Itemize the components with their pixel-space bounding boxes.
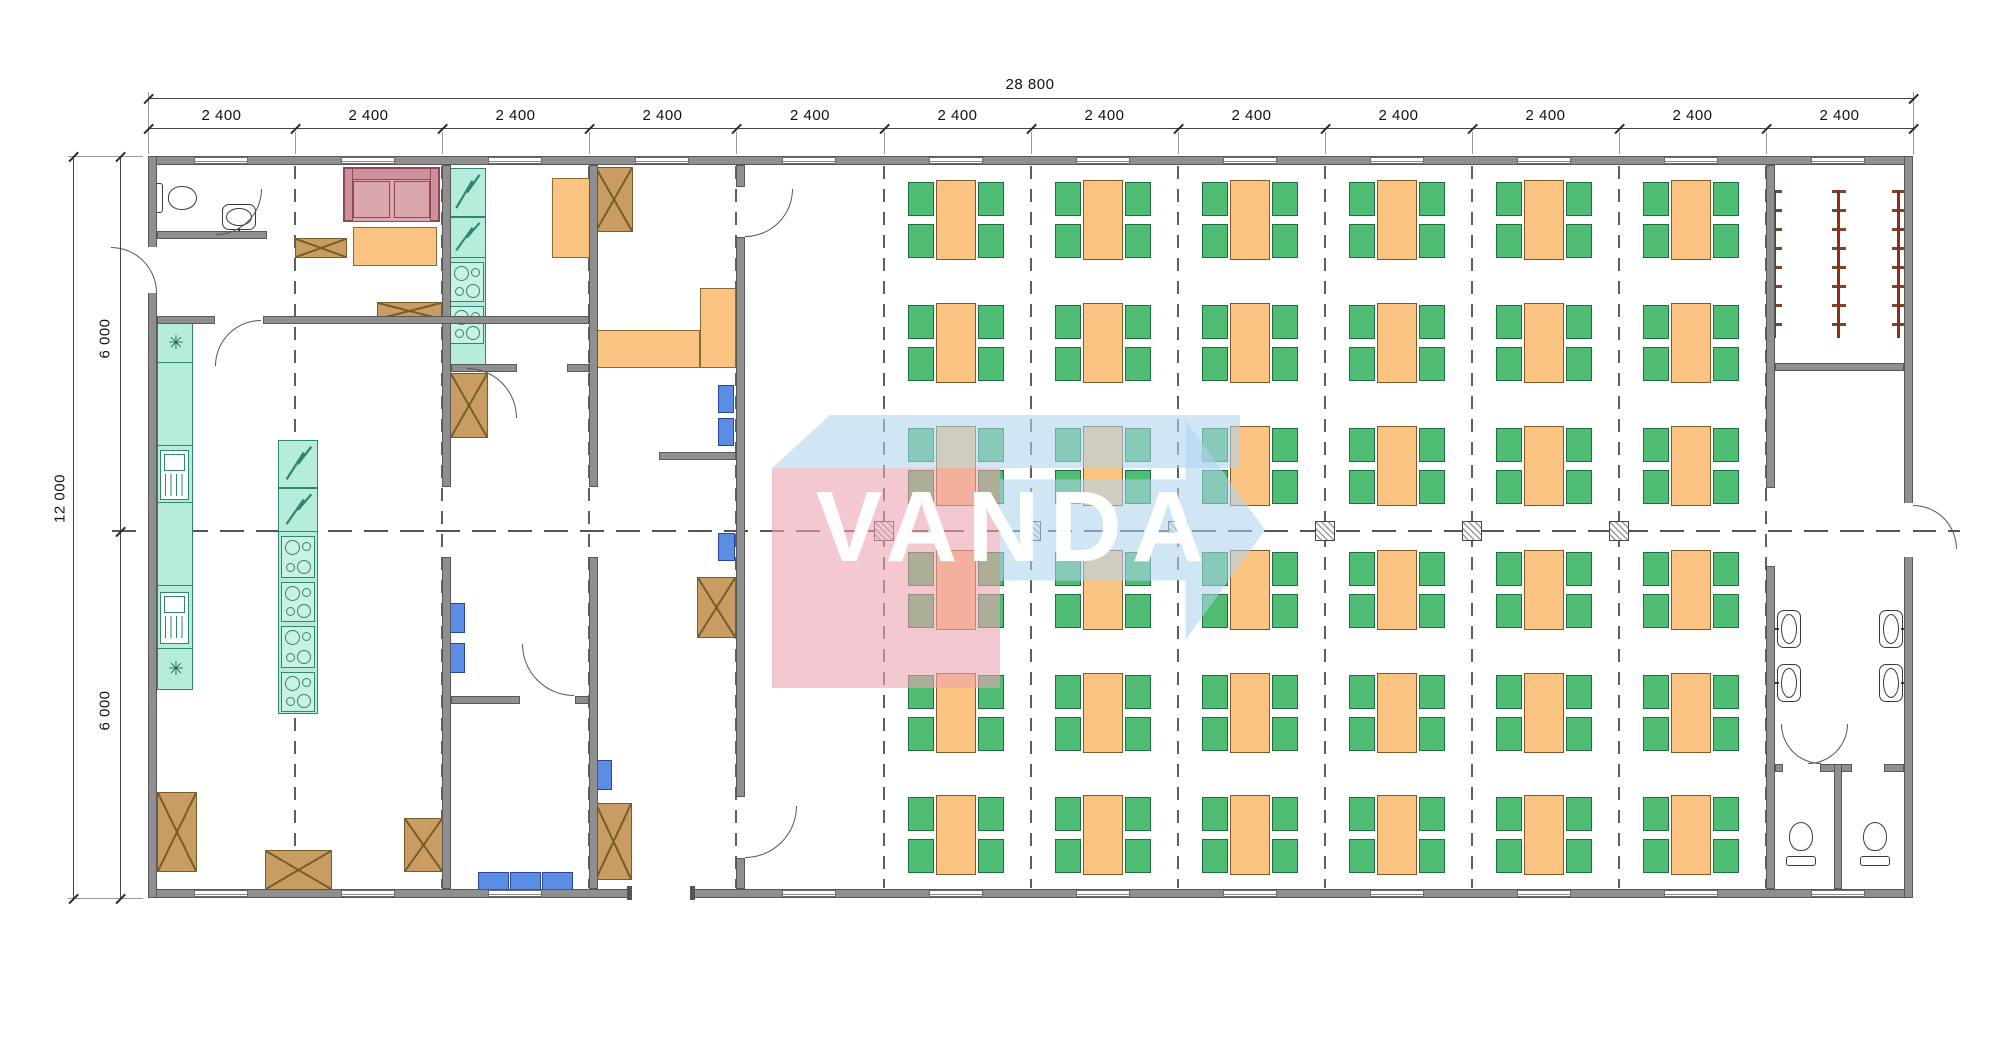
dimension-label: 2 400 — [1212, 107, 1292, 125]
chair — [1055, 182, 1081, 216]
window-icon — [1076, 157, 1130, 164]
chair — [1202, 717, 1228, 751]
wall — [442, 165, 451, 487]
chair — [1055, 675, 1081, 709]
chair — [1125, 594, 1151, 628]
chair — [1713, 347, 1739, 381]
chair — [1643, 839, 1669, 873]
floor-plan-canvas: VANDA 28 800 12 000 6 000 6 000 ✳✳2 4002… — [0, 0, 2000, 1041]
counter-divider — [157, 585, 193, 586]
chair — [1643, 594, 1669, 628]
wall — [1775, 363, 1904, 371]
dimension-label: 2 400 — [1506, 107, 1586, 125]
door-swing-icon — [216, 189, 262, 235]
chair — [1643, 347, 1669, 381]
chair — [908, 224, 934, 258]
seat — [510, 872, 541, 890]
chair — [908, 182, 934, 216]
chair — [1055, 305, 1081, 339]
stove-icon — [281, 536, 315, 578]
seat — [718, 533, 735, 561]
dimension-line — [120, 156, 121, 898]
wall — [157, 316, 215, 324]
watermark-logo-text: VANDA — [770, 462, 1260, 592]
window-icon — [1076, 890, 1130, 897]
extension-line — [589, 132, 590, 154]
chair — [1202, 305, 1228, 339]
chair — [1713, 224, 1739, 258]
chair — [1349, 839, 1375, 873]
seat — [718, 385, 734, 413]
dining-table — [1524, 795, 1564, 875]
dining-table — [1524, 426, 1564, 506]
chair — [1496, 224, 1522, 258]
chair — [1643, 305, 1669, 339]
burner-icon: ✳ — [168, 334, 184, 353]
chair — [908, 717, 934, 751]
counter-table — [353, 227, 437, 266]
door-swing-icon — [745, 189, 793, 237]
washbasin-icon — [1777, 664, 1801, 702]
chair — [1419, 552, 1445, 586]
counter-table — [700, 288, 736, 368]
chair — [1496, 594, 1522, 628]
chair — [1419, 182, 1445, 216]
chair — [978, 182, 1004, 216]
storage-cabinet — [404, 818, 443, 872]
chair — [1349, 717, 1375, 751]
chair — [1272, 552, 1298, 586]
extension-line — [1619, 132, 1620, 154]
column-marker — [1315, 521, 1335, 541]
dining-table — [1671, 426, 1711, 506]
dining-table — [1083, 180, 1123, 260]
burner-icon: ✳ — [168, 660, 184, 679]
toilet-icon — [153, 183, 197, 213]
chair — [1125, 839, 1151, 873]
seat — [718, 418, 734, 446]
chair — [1419, 797, 1445, 831]
toilet-icon — [1860, 822, 1890, 866]
chair — [1202, 347, 1228, 381]
dimension-label: 2 400 — [1800, 107, 1880, 125]
chair — [1349, 224, 1375, 258]
window-icon — [1664, 890, 1718, 897]
dining-table — [1083, 673, 1123, 753]
window-icon — [1370, 157, 1424, 164]
window-icon — [635, 157, 689, 164]
dimension-overall-width: 28 800 — [950, 76, 1110, 93]
extension-line — [442, 132, 443, 154]
counter-table — [552, 178, 590, 258]
window-icon — [1223, 157, 1277, 164]
dimension-height-lower: 6 000 — [97, 668, 114, 754]
extension-line — [68, 156, 143, 157]
chair — [1272, 675, 1298, 709]
window-icon — [1517, 890, 1571, 897]
dimension-label: 2 400 — [1653, 107, 1733, 125]
wall — [442, 557, 451, 889]
chair — [1496, 182, 1522, 216]
chair — [1125, 717, 1151, 751]
wall — [157, 231, 267, 239]
sink-icon — [160, 592, 189, 644]
toilet-icon — [1786, 822, 1816, 866]
chair — [1419, 305, 1445, 339]
chair — [1419, 675, 1445, 709]
stove-icon — [450, 306, 484, 344]
chair — [1349, 305, 1375, 339]
wall — [736, 858, 745, 889]
refrigerator-icon — [278, 488, 318, 532]
chair — [1349, 470, 1375, 504]
chair — [1055, 797, 1081, 831]
counter-table — [592, 330, 700, 368]
chair — [1566, 305, 1592, 339]
dining-table — [1377, 180, 1417, 260]
wall — [1766, 566, 1775, 889]
dining-table — [1377, 426, 1417, 506]
wall — [1775, 764, 1783, 772]
washbasin-icon — [1777, 610, 1801, 648]
wall — [589, 165, 598, 487]
chair — [1419, 470, 1445, 504]
chair — [1713, 470, 1739, 504]
extension-line — [1031, 132, 1032, 154]
dimension-label: 2 400 — [329, 107, 409, 125]
chair — [1566, 470, 1592, 504]
chair — [978, 839, 1004, 873]
column-marker — [1609, 521, 1629, 541]
storage-cabinet — [697, 577, 736, 638]
chair — [1272, 347, 1298, 381]
dining-table — [1524, 303, 1564, 383]
chair — [1349, 594, 1375, 628]
chair — [1566, 675, 1592, 709]
door-swing-icon — [1808, 724, 1848, 764]
chair — [978, 224, 1004, 258]
dimension-line — [148, 98, 1913, 99]
chair — [1643, 552, 1669, 586]
dining-table — [1083, 303, 1123, 383]
dining-table — [1377, 550, 1417, 630]
counter-divider — [157, 502, 193, 503]
chair — [908, 305, 934, 339]
door-post — [627, 886, 632, 900]
window-icon — [1223, 890, 1277, 897]
chair — [1272, 594, 1298, 628]
dining-table — [1230, 180, 1270, 260]
door-opening — [1904, 503, 1913, 557]
window-icon — [341, 890, 395, 897]
chair — [1349, 182, 1375, 216]
chair — [1496, 839, 1522, 873]
window-icon — [782, 157, 836, 164]
refrigerator-icon — [278, 440, 318, 488]
dining-table — [1230, 303, 1270, 383]
chair — [1419, 428, 1445, 462]
refrigerator-icon — [448, 217, 486, 258]
dining-table — [1524, 550, 1564, 630]
dimension-line — [73, 156, 74, 898]
chair — [1643, 182, 1669, 216]
dining-table — [1083, 795, 1123, 875]
chair — [1202, 224, 1228, 258]
chair — [1272, 428, 1298, 462]
chair — [1643, 797, 1669, 831]
wall — [1834, 764, 1842, 889]
chair — [1496, 717, 1522, 751]
chair — [1272, 797, 1298, 831]
chair — [1272, 224, 1298, 258]
chair — [1349, 428, 1375, 462]
door-swing-icon — [467, 368, 517, 418]
chair — [1496, 797, 1522, 831]
chair — [1202, 797, 1228, 831]
chair — [1419, 594, 1445, 628]
chair — [1055, 594, 1081, 628]
extension-line — [736, 132, 737, 154]
wall — [736, 237, 745, 797]
window-icon — [1664, 157, 1718, 164]
door-swing-icon — [1913, 505, 1957, 549]
dining-table — [1671, 673, 1711, 753]
dining-table — [936, 180, 976, 260]
chair — [1125, 305, 1151, 339]
door-post — [690, 886, 695, 900]
dimension-label: 2 400 — [476, 107, 556, 125]
chair — [1202, 839, 1228, 873]
chair — [1713, 182, 1739, 216]
extension-line — [1766, 132, 1767, 154]
chair — [1643, 675, 1669, 709]
chair — [1643, 470, 1669, 504]
extension-line — [1325, 132, 1326, 154]
dining-table — [1377, 303, 1417, 383]
counter-divider — [157, 362, 193, 363]
dining-table — [1671, 550, 1711, 630]
sink-icon — [160, 450, 189, 500]
window-icon — [1811, 890, 1865, 897]
chair — [1349, 675, 1375, 709]
chair — [1349, 797, 1375, 831]
wall — [736, 165, 745, 187]
stove-icon — [281, 626, 315, 668]
chair — [978, 717, 1004, 751]
stove-icon — [281, 582, 315, 622]
seat — [478, 872, 509, 890]
storage-cabinet — [265, 850, 332, 890]
extension-line — [884, 132, 885, 154]
counter-divider — [157, 648, 193, 649]
chair — [1496, 347, 1522, 381]
window-icon — [929, 157, 983, 164]
watermark-box-top-face — [772, 415, 1240, 468]
chair — [1713, 305, 1739, 339]
window-icon — [782, 890, 836, 897]
wall — [1884, 764, 1904, 772]
window-icon — [1370, 890, 1424, 897]
chair — [1419, 347, 1445, 381]
chair — [1202, 675, 1228, 709]
washbasin-icon — [1879, 664, 1903, 702]
window-icon — [488, 890, 542, 897]
chair — [1643, 428, 1669, 462]
dining-table — [1671, 795, 1711, 875]
chair — [1496, 470, 1522, 504]
sofa — [343, 167, 440, 222]
chair — [1125, 224, 1151, 258]
chair — [1566, 552, 1592, 586]
dimension-label: 2 400 — [918, 107, 998, 125]
dimension-label: 2 400 — [1359, 107, 1439, 125]
dimension-label: 2 400 — [623, 107, 703, 125]
dining-table — [1230, 673, 1270, 753]
storage-cabinet — [595, 167, 633, 232]
wall — [263, 316, 589, 324]
chair — [1125, 675, 1151, 709]
door-opening — [632, 889, 690, 898]
wall — [589, 557, 598, 889]
chair — [1713, 552, 1739, 586]
chair — [1272, 470, 1298, 504]
chair — [1125, 797, 1151, 831]
dimension-overall-height: 12 000 — [52, 454, 69, 544]
chair — [978, 797, 1004, 831]
door-swing-icon — [745, 806, 797, 858]
chair — [908, 839, 934, 873]
chair — [1566, 839, 1592, 873]
coat-rack — [1832, 190, 1846, 338]
counter-divider — [157, 445, 193, 446]
chair — [978, 347, 1004, 381]
chair — [1272, 182, 1298, 216]
dining-table — [936, 303, 976, 383]
door-swing-icon — [522, 644, 574, 696]
chair — [1055, 347, 1081, 381]
window-icon — [194, 890, 248, 897]
chair — [1419, 839, 1445, 873]
chair — [1566, 347, 1592, 381]
dimension-label: 2 400 — [770, 107, 850, 125]
window-icon — [1517, 157, 1571, 164]
wall — [1766, 165, 1775, 488]
storage-cabinet — [157, 792, 197, 872]
chair — [908, 347, 934, 381]
dimension-label: 2 400 — [1065, 107, 1145, 125]
chair — [1713, 428, 1739, 462]
stove-icon — [281, 672, 315, 712]
dining-table — [1230, 795, 1270, 875]
window-icon — [341, 157, 395, 164]
wall — [148, 156, 1913, 165]
chair — [978, 305, 1004, 339]
chair — [1713, 717, 1739, 751]
chair — [1713, 839, 1739, 873]
chair — [1125, 182, 1151, 216]
extension-line — [1472, 132, 1473, 154]
chair — [1713, 594, 1739, 628]
dimension-label: 2 400 — [182, 107, 262, 125]
chair — [1713, 675, 1739, 709]
extension-line — [295, 132, 296, 154]
chair — [1643, 717, 1669, 751]
chair — [1496, 552, 1522, 586]
chair — [1566, 224, 1592, 258]
wall — [659, 452, 736, 460]
stove-icon — [450, 262, 484, 302]
storage-cabinet — [295, 238, 347, 258]
chair — [1566, 182, 1592, 216]
chair — [1419, 224, 1445, 258]
chair — [1419, 717, 1445, 751]
refrigerator-icon — [448, 168, 486, 217]
chair — [1496, 428, 1522, 462]
chair — [1202, 182, 1228, 216]
dimension-height-upper: 6 000 — [97, 296, 114, 382]
window-icon — [929, 890, 983, 897]
window-icon — [194, 157, 248, 164]
chair — [1055, 224, 1081, 258]
chair — [1566, 797, 1592, 831]
washbasin-icon — [1879, 610, 1903, 648]
seat — [542, 872, 573, 890]
extension-line — [68, 898, 143, 899]
chair — [908, 797, 934, 831]
wall — [451, 696, 520, 704]
dining-table — [1524, 673, 1564, 753]
window-icon — [488, 157, 542, 164]
storage-cabinet — [595, 803, 632, 880]
chair — [1272, 305, 1298, 339]
wall — [575, 696, 589, 704]
chair — [1272, 839, 1298, 873]
dining-table — [1524, 180, 1564, 260]
extension-line — [148, 92, 149, 152]
column-marker — [1462, 521, 1482, 541]
extension-line — [1178, 132, 1179, 154]
chair — [1349, 347, 1375, 381]
chair — [1349, 552, 1375, 586]
wall — [567, 364, 589, 372]
dining-table — [936, 795, 976, 875]
chair — [1272, 717, 1298, 751]
chair — [1643, 224, 1669, 258]
chair — [1566, 428, 1592, 462]
door-swing-icon — [215, 320, 261, 366]
chair — [1713, 797, 1739, 831]
wall — [148, 889, 1913, 898]
window-icon — [1811, 157, 1865, 164]
chair — [1566, 717, 1592, 751]
chair — [1566, 594, 1592, 628]
chair — [1055, 717, 1081, 751]
dining-table — [1377, 795, 1417, 875]
extension-line — [1913, 92, 1914, 152]
dining-table — [1377, 673, 1417, 753]
chair — [1055, 839, 1081, 873]
dining-table — [1671, 180, 1711, 260]
chair — [1496, 675, 1522, 709]
chair — [1125, 347, 1151, 381]
dining-table — [1671, 303, 1711, 383]
chair — [1496, 305, 1522, 339]
